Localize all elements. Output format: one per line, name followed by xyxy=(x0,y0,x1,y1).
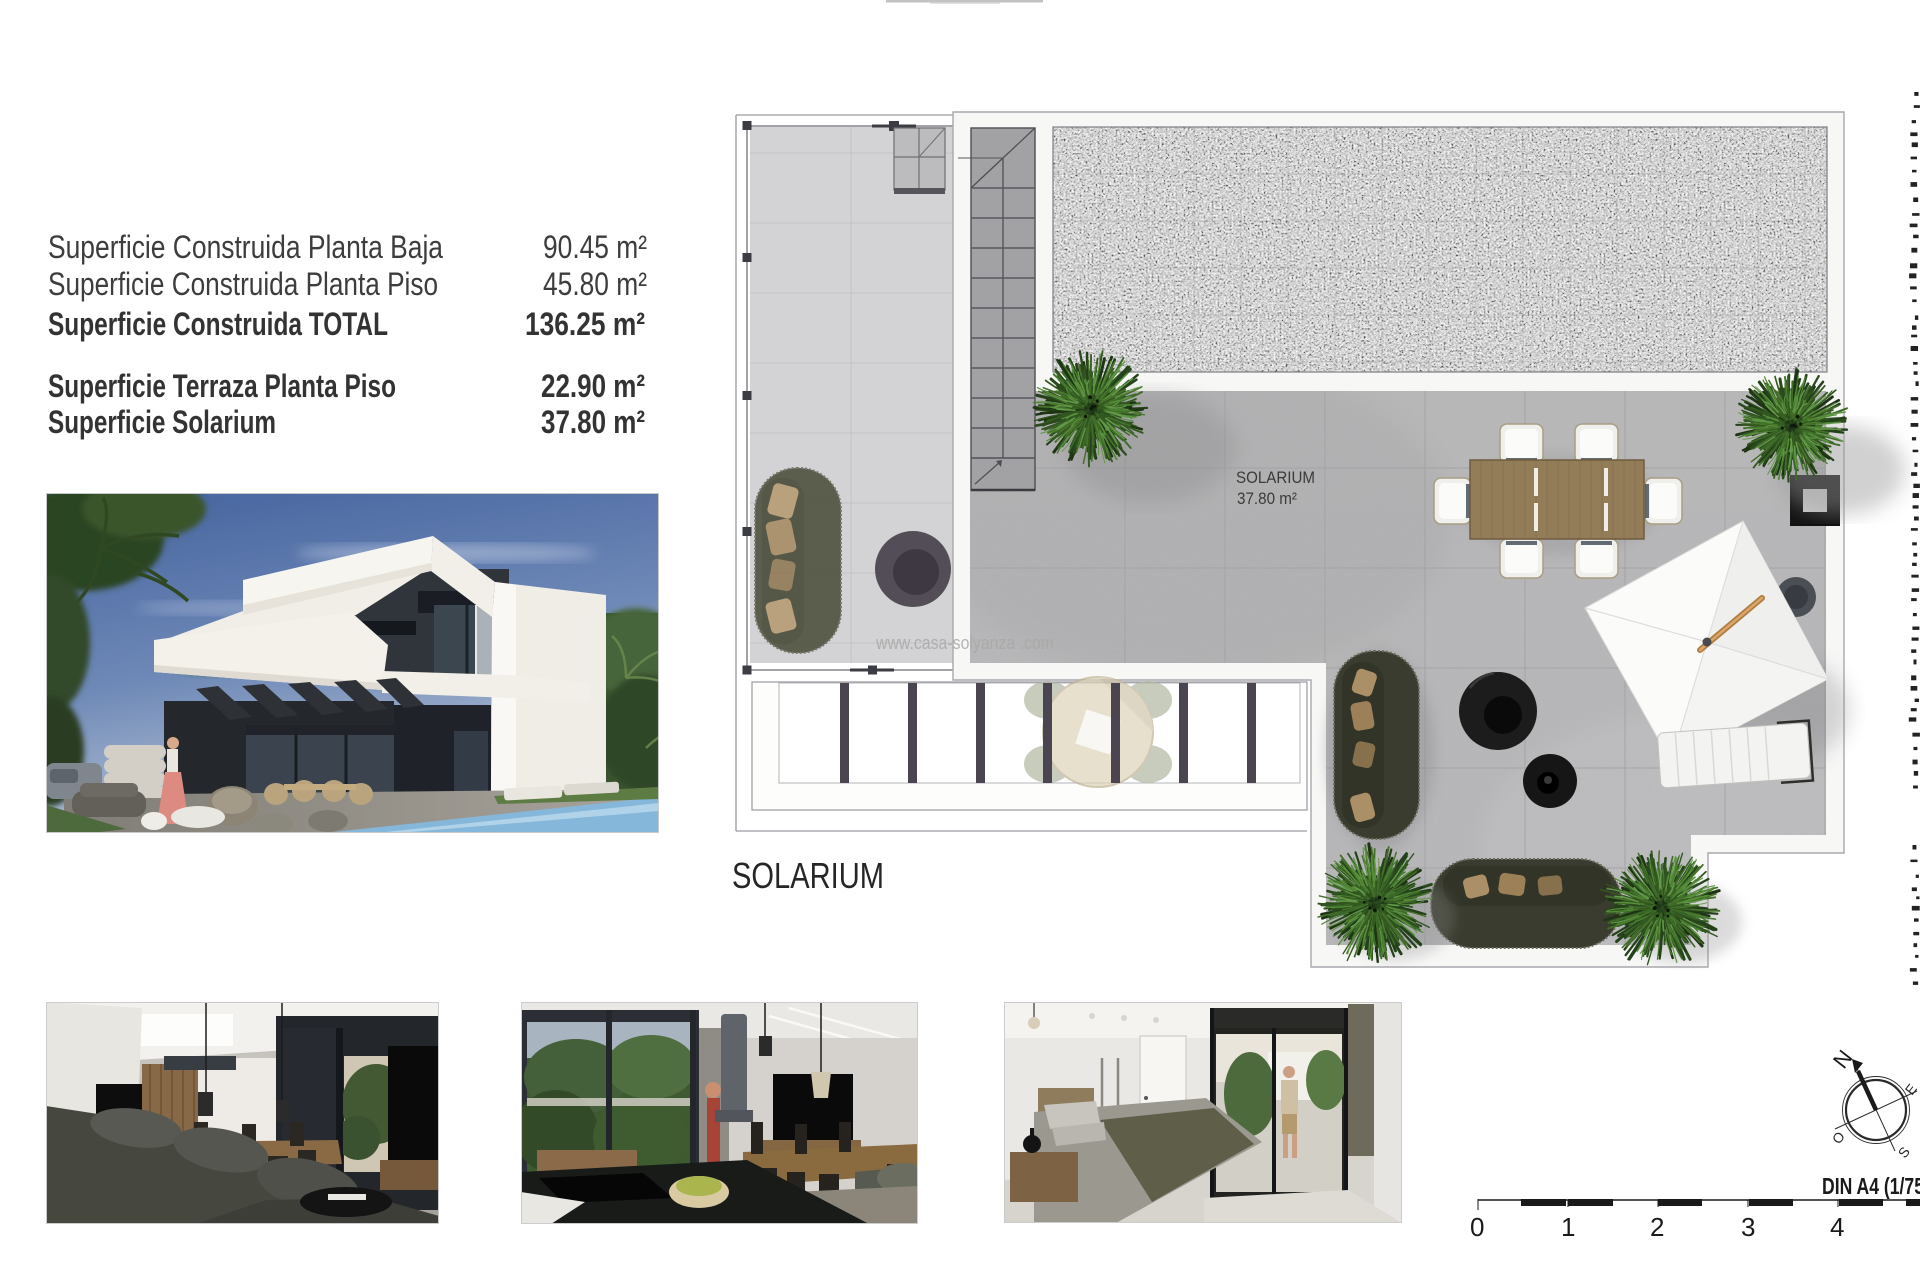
svg-text:37.80 m²: 37.80 m² xyxy=(1237,489,1297,508)
svg-text:SOLARIUM: SOLARIUM xyxy=(1236,468,1315,487)
svg-text:Superficie Construida Planta B: Superficie Construida Planta Baja xyxy=(48,229,443,265)
svg-text:2: 2 xyxy=(1650,1212,1664,1242)
svg-text:3: 3 xyxy=(1741,1212,1755,1242)
svg-text:www.casa-solyanza .com: www.casa-solyanza .com xyxy=(875,633,1054,653)
svg-text:45.80 m²: 45.80 m² xyxy=(543,266,647,302)
svg-text:90.45 m²: 90.45 m² xyxy=(543,229,647,265)
svg-text:1: 1 xyxy=(1561,1212,1575,1242)
svg-text:Superficie Solarium: Superficie Solarium xyxy=(48,404,276,440)
svg-text:SOLARIUM: SOLARIUM xyxy=(732,855,884,896)
svg-text:37.80 m²: 37.80 m² xyxy=(541,404,645,440)
svg-text:0: 0 xyxy=(1470,1212,1484,1242)
svg-text:4: 4 xyxy=(1830,1212,1844,1242)
svg-text:Superficie Terraza Planta Piso: Superficie Terraza Planta Piso xyxy=(48,368,396,404)
svg-text:Superficie Construida Planta P: Superficie Construida Planta Piso xyxy=(48,266,438,302)
svg-text:22.90 m²: 22.90 m² xyxy=(541,368,645,404)
svg-text:DIN A4 (1/75: DIN A4 (1/75 xyxy=(1822,1173,1920,1199)
svg-text:136.25 m²: 136.25 m² xyxy=(525,306,645,342)
svg-text:Superficie Construida TOTAL: Superficie Construida TOTAL xyxy=(48,306,388,342)
